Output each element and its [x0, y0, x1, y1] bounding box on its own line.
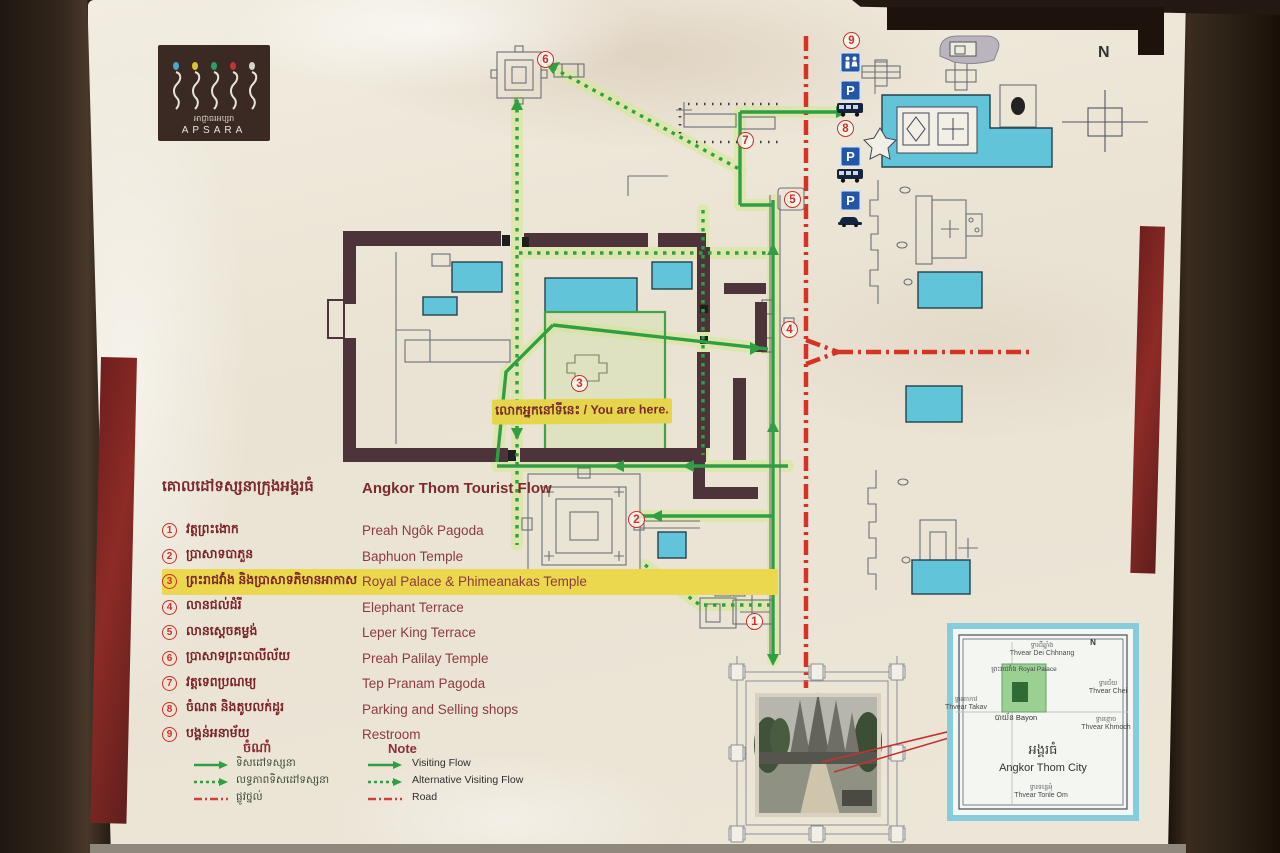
legend-item-7: 7 វត្តទេពប្រណម្យ Tep Pranam Pagoda: [162, 671, 778, 697]
legend-num-4: 4: [162, 600, 177, 615]
visiting-flow-line-icon: [192, 760, 230, 770]
legend-khmer-8: ចំណត និងតូបលក់ដូរ: [186, 700, 362, 718]
apsara-brand-text: APSARA: [182, 125, 247, 136]
note-khmer-alternative-flow: លទ្ធភាពទិសដៅទស្សនា: [236, 774, 329, 789]
legend-num-3: 3: [162, 574, 177, 589]
legend-item-8: 8 ចំណត និងតូបលក់ដូរ Parking and Selling …: [162, 697, 778, 723]
legend-num-9: 9: [162, 727, 177, 742]
parking-sign-icon: P: [840, 80, 861, 101]
you-are-here-label: លោកអ្នកនៅទីនេះ / You are here.: [492, 398, 672, 424]
bus-icon: [836, 168, 864, 183]
legend-english-6: Preah Palilay Temple: [362, 651, 778, 666]
legend-title-khmer: គោលដៅទស្សនាក្រុងអង្គរធំ: [162, 477, 362, 499]
inset-royal-palace-label: ព្រះរាជវាំង Royal Palace: [991, 666, 1057, 675]
bus-icon: [836, 102, 864, 117]
restroom-sign-icon: [840, 52, 861, 73]
legend-khmer-6: ប្រាសាទព្រះបាលីល័យ: [186, 649, 362, 667]
legend-english-8: Parking and Selling shops: [362, 702, 778, 717]
compass-north-label: N: [1098, 44, 1110, 62]
note-khmer-road: ផ្លូវថ្នល់: [236, 791, 263, 806]
legend-khmer-4: លានជល់ដំរី: [186, 598, 362, 616]
inset-bayon-label: បាយ័ន Bayon: [995, 713, 1037, 724]
visiting-flow-line-icon: [366, 760, 404, 770]
inset-royal-palace-khmer: ព្រះរាជវាំង: [991, 666, 1016, 673]
inset-death-gate-label: ទ្វារខ្មោច Thvear Khmoch: [1081, 716, 1130, 732]
legend-khmer-3: ព្រះរាជវាំង និងប្រាសាទភិមានអាកាស: [186, 573, 362, 591]
dark-bar-top: [887, 7, 1140, 30]
inset-compass-label: N: [1090, 638, 1096, 647]
inset-west-gate-english: Thvear Takav: [945, 704, 987, 711]
preah-pithu-temples: [864, 107, 977, 159]
map-marker-3: 3: [571, 375, 588, 392]
reclining-buddha-plan: [940, 36, 999, 64]
road-line-icon: [192, 794, 230, 804]
map-marker-4: 4: [781, 321, 798, 338]
legend-english-7: Tep Pranam Pagoda: [362, 676, 778, 691]
inset-north-gate-label: ទ្វារដីឆ្នាំង Thvear Dei Chhnang: [1010, 642, 1075, 658]
map-marker-6: 6: [537, 51, 554, 68]
legend-item-4: 4 លានជល់ដំរី Elephant Terrace: [162, 595, 778, 621]
map-marker-7: 7: [737, 132, 754, 149]
apsara-logo: អាជ្ញាធរអប្សរា APSARA: [158, 45, 270, 141]
legend-english-2: Baphuon Temple: [362, 549, 778, 564]
inset-victory-gate-label: ទ្វារជ័យ Thvear Chei: [1089, 680, 1127, 696]
legend-english-5: Leper King Terrace: [362, 625, 778, 640]
legend-title-english: Angkor Thom Tourist Flow: [362, 480, 778, 497]
inset-bayon-english: Bayon: [1016, 713, 1037, 722]
legend-num-7: 7: [162, 676, 177, 691]
inset-victory-gate-khmer: ទ្វារជ័យ: [1089, 680, 1127, 688]
legend-item-1: 1 វត្តព្រះងោក Preah Ngôk Pagoda: [162, 518, 778, 544]
legend-num-5: 5: [162, 625, 177, 640]
legend-english-3: Royal Palace & Phimeanakas Temple: [362, 574, 778, 589]
legend-item-2: 2 ប្រាសាទបាភួន Baphuon Temple: [162, 544, 778, 570]
palace-west-gate: [328, 300, 344, 338]
inset-title-khmer: អង្គរធំ: [1029, 742, 1058, 761]
parking-sign-icon: P: [840, 146, 861, 167]
legend-english-1: Preah Ngôk Pagoda: [362, 523, 778, 538]
wood-frame-right: [1168, 0, 1280, 853]
parking-sign-icon: P: [840, 190, 861, 211]
legend-title: គោលដៅទស្សនាក្រុងអង្គរធំ Angkor Thom Tour…: [162, 476, 778, 500]
note-english-alternative-flow: Alternative Visiting Flow: [412, 774, 523, 786]
inset-death-gate-khmer: ទ្វារខ្មោច: [1081, 716, 1130, 724]
legend-khmer-1: វត្តព្រះងោក: [186, 522, 362, 540]
inset-bayon-khmer: បាយ័ន: [995, 713, 1014, 722]
inset-west-gate-label: ទ្វារតាកាវ Thvear Takav: [945, 696, 987, 712]
legend-khmer-9: បង្គន់អនាម័យ: [186, 726, 362, 744]
inset-south-gate-label: ទ្វារទន្លេអុំ Thvear Tonle Om: [1014, 784, 1068, 800]
inset-south-gate-english: Thvear Tonle Om: [1014, 792, 1068, 799]
note-khmer-visiting-flow: ទិសដៅទស្សនា: [236, 757, 296, 772]
inset-title-english: Angkor Thom City: [999, 762, 1087, 774]
legend-english-4: Elephant Terrace: [362, 600, 778, 615]
legend-num-8: 8: [162, 702, 177, 717]
legend-num-6: 6: [162, 651, 177, 666]
inset-victory-gate-english: Thvear Chei: [1089, 688, 1127, 695]
ground-strip: [90, 844, 1186, 853]
inset-death-gate-english: Thvear Khmoch: [1081, 724, 1130, 731]
map-marker-8: 8: [837, 120, 854, 137]
road-line-icon: [366, 794, 404, 804]
note-english-road: Road: [412, 791, 437, 803]
alternative-flow-line-icon: [366, 777, 404, 787]
inset-north-gate-khmer: ទ្វារដីឆ្នាំង: [1010, 642, 1075, 650]
apsara-khmer-text: អាជ្ញាធរអប្សរា: [194, 114, 234, 124]
apsara-figures-icon: [164, 62, 264, 114]
inset-west-gate-khmer: ទ្វារតាកាវ: [945, 696, 987, 704]
inset-south-gate-khmer: ទ្វារទន្លេអុំ: [1014, 784, 1068, 792]
map-marker-5: 5: [784, 191, 801, 208]
alternative-flow-line-icon: [192, 777, 230, 787]
legend-khmer-2: ប្រាសាទបាភួន: [186, 547, 362, 565]
legend: គោលដៅទស្សនាក្រុងអង្គរធំ Angkor Thom Tour…: [162, 476, 778, 748]
inset-royal-palace-english: Royal Palace: [1018, 666, 1056, 673]
map-marker-9: 9: [843, 32, 860, 49]
inset-north-gate-english: Thvear Dei Chhnang: [1010, 650, 1075, 657]
legend-item-6: 6 ប្រាសាទព្រះបាលីល័យ Preah Palilay Templ…: [162, 646, 778, 672]
legend-english-9: Restroom: [362, 727, 778, 742]
legend-num-2: 2: [162, 549, 177, 564]
legend-khmer-7: វត្តទេពប្រណម្យ: [186, 675, 362, 693]
pithu-dark-temple: [1011, 97, 1025, 115]
legend-item-3-highlighted: 3 ព្រះរាជវាំង និងប្រាសាទភិមានអាកាស Royal…: [162, 569, 778, 595]
legend-item-5: 5 លានស្តេចគម្លង់ Leper King Terrace: [162, 620, 778, 646]
legend-num-1: 1: [162, 523, 177, 538]
note-english-visiting-flow: Visiting Flow: [412, 757, 471, 769]
dark-bar-top-corner: [1138, 7, 1164, 55]
car-icon: [837, 214, 863, 227]
legend-khmer-5: លានស្តេចគម្លង់: [186, 624, 362, 642]
photo-of-sign: អាជ្ញាធរអប្សរា APSARA 1 2 3 4 5 6 7 8 9 …: [0, 0, 1280, 853]
note-heading-english: Note: [388, 741, 417, 756]
